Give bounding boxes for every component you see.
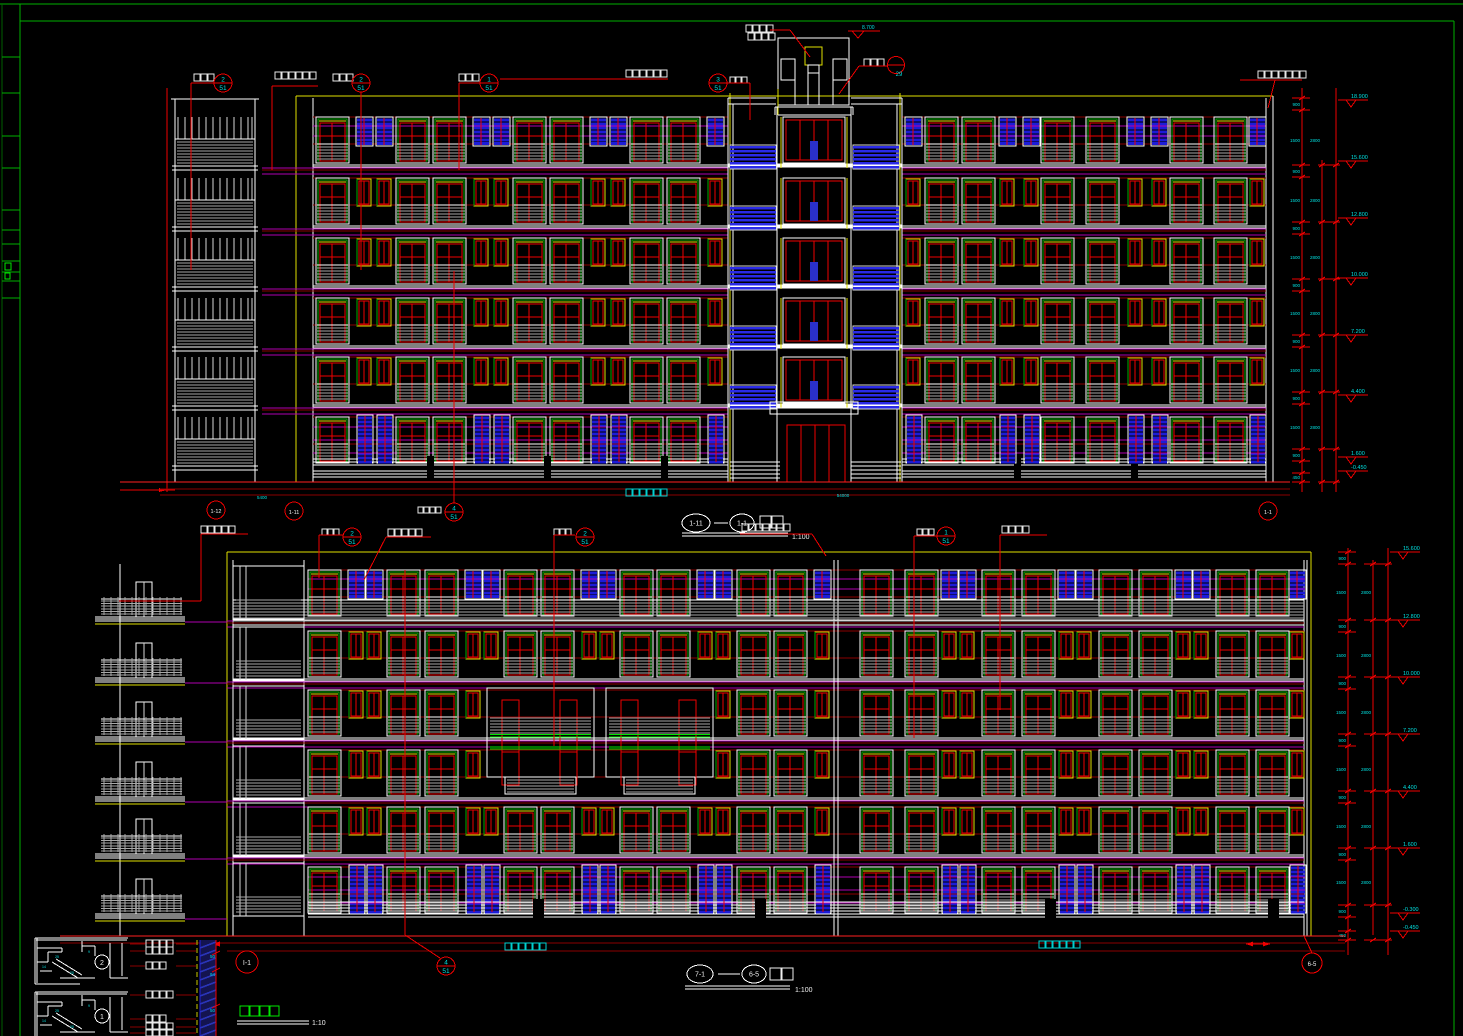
svg-text:-0.450: -0.450 [1351, 465, 1367, 471]
svg-text:29: 29 [896, 72, 903, 78]
svg-text:900: 900 [1338, 624, 1346, 629]
svg-text:50: 50 [210, 1008, 216, 1013]
svg-text:12.800: 12.800 [1351, 212, 1368, 218]
svg-text:900: 900 [1292, 169, 1300, 174]
svg-text:14: 14 [42, 965, 46, 969]
svg-text:1500: 1500 [1290, 368, 1301, 373]
svg-text:1:100: 1:100 [795, 987, 813, 994]
svg-text:6-5: 6-5 [1308, 962, 1317, 968]
svg-text:900: 900 [1338, 852, 1346, 857]
svg-text:1500: 1500 [1336, 767, 1347, 772]
svg-text:2800: 2800 [1310, 368, 1321, 373]
svg-text:1500: 1500 [1290, 311, 1301, 316]
svg-text:1-11: 1-11 [289, 510, 300, 516]
svg-text:1:10: 1:10 [312, 1020, 326, 1027]
svg-text:51: 51 [219, 85, 227, 92]
svg-text:-0.300: -0.300 [1403, 907, 1419, 913]
svg-text:2800: 2800 [1310, 311, 1321, 316]
svg-text:-0.450: -0.450 [1403, 925, 1419, 931]
svg-text:900: 900 [1292, 102, 1300, 107]
svg-text:3: 3 [716, 77, 720, 84]
svg-text:2800: 2800 [1361, 710, 1372, 715]
svg-text:94: 94 [210, 972, 216, 977]
svg-text:2800: 2800 [1361, 653, 1372, 658]
svg-text:25: 25 [70, 1025, 74, 1029]
svg-text:25: 25 [55, 1009, 59, 1013]
svg-text:2800: 2800 [1310, 198, 1321, 203]
svg-text:900: 900 [1292, 226, 1300, 231]
svg-text:4: 4 [452, 506, 456, 513]
svg-text:900: 900 [1292, 283, 1300, 288]
svg-text:1500: 1500 [1290, 255, 1301, 260]
svg-text:1: 1 [944, 530, 948, 537]
svg-text:51: 51 [942, 538, 950, 545]
svg-text:450: 450 [1292, 475, 1300, 480]
svg-text:1: 1 [487, 77, 491, 84]
svg-text:1500: 1500 [1336, 653, 1347, 658]
svg-text:1500: 1500 [1336, 710, 1347, 715]
svg-text:1.600: 1.600 [1403, 842, 1417, 848]
svg-text:1500: 1500 [1336, 880, 1347, 885]
svg-text:25: 25 [70, 971, 74, 975]
svg-text:25: 25 [55, 955, 59, 959]
svg-text:51: 51 [714, 85, 722, 92]
svg-text:900: 900 [1338, 738, 1346, 743]
svg-text:51: 51 [442, 968, 450, 975]
svg-text:15.600: 15.600 [1403, 546, 1420, 552]
svg-text:10.000: 10.000 [1351, 272, 1368, 278]
svg-text:1: 1 [100, 1014, 104, 1021]
svg-text:9: 9 [88, 1004, 90, 1008]
svg-text:51: 51 [450, 514, 458, 521]
svg-text:900: 900 [1292, 339, 1300, 344]
svg-text:2: 2 [359, 77, 363, 84]
svg-text:2: 2 [583, 531, 587, 538]
svg-text:6-5: 6-5 [749, 972, 759, 979]
svg-text:1500: 1500 [1290, 198, 1301, 203]
svg-text:2800: 2800 [1361, 824, 1372, 829]
svg-text:4.400: 4.400 [1351, 389, 1365, 395]
svg-text:1500: 1500 [1290, 138, 1301, 143]
svg-text:51: 51 [348, 539, 356, 546]
svg-text:1500: 1500 [1336, 824, 1347, 829]
svg-text:5400: 5400 [257, 495, 268, 500]
svg-text:2800: 2800 [1310, 425, 1321, 430]
svg-text:18.900: 18.900 [1351, 94, 1368, 100]
svg-text:9: 9 [88, 950, 90, 954]
svg-text:10.000: 10.000 [1403, 671, 1420, 677]
svg-text:4.400: 4.400 [1403, 785, 1417, 791]
svg-text:900: 900 [1338, 681, 1346, 686]
svg-text:8.700: 8.700 [862, 25, 875, 31]
svg-text:2800: 2800 [1310, 138, 1321, 143]
svg-text:900: 900 [1338, 795, 1346, 800]
svg-text:2: 2 [221, 77, 225, 84]
svg-text:900: 900 [1292, 453, 1300, 458]
svg-text:I-1: I-1 [243, 960, 251, 967]
svg-text:900: 900 [1292, 396, 1300, 401]
svg-text:51: 51 [357, 85, 365, 92]
svg-text:1-12: 1-12 [210, 509, 221, 515]
svg-text:2800: 2800 [1361, 767, 1372, 772]
svg-text:2800: 2800 [1361, 880, 1372, 885]
svg-text:1-1: 1-1 [1264, 510, 1272, 516]
svg-text:1-11: 1-11 [689, 521, 703, 528]
svg-text:51: 51 [581, 539, 589, 546]
svg-text:1.600: 1.600 [1351, 451, 1365, 457]
svg-text:7-1: 7-1 [695, 972, 705, 979]
svg-text:15.600: 15.600 [1351, 155, 1368, 161]
svg-text:900: 900 [1338, 909, 1346, 914]
svg-text:51: 51 [485, 85, 493, 92]
svg-text:2: 2 [100, 960, 104, 967]
svg-text:2800: 2800 [1310, 255, 1321, 260]
svg-text:54000: 54000 [837, 493, 850, 498]
svg-text:900: 900 [1338, 556, 1346, 561]
svg-text:14: 14 [42, 1019, 46, 1023]
svg-text:2: 2 [350, 531, 354, 538]
svg-text:1:100: 1:100 [792, 534, 810, 541]
svg-text:12.800: 12.800 [1403, 614, 1420, 620]
svg-text:7.200: 7.200 [1351, 329, 1365, 335]
svg-text:1500: 1500 [1336, 590, 1347, 595]
svg-text:4: 4 [444, 960, 448, 967]
svg-text:1500: 1500 [1290, 425, 1301, 430]
svg-text:7.200: 7.200 [1403, 728, 1417, 734]
svg-text:2800: 2800 [1361, 590, 1372, 595]
